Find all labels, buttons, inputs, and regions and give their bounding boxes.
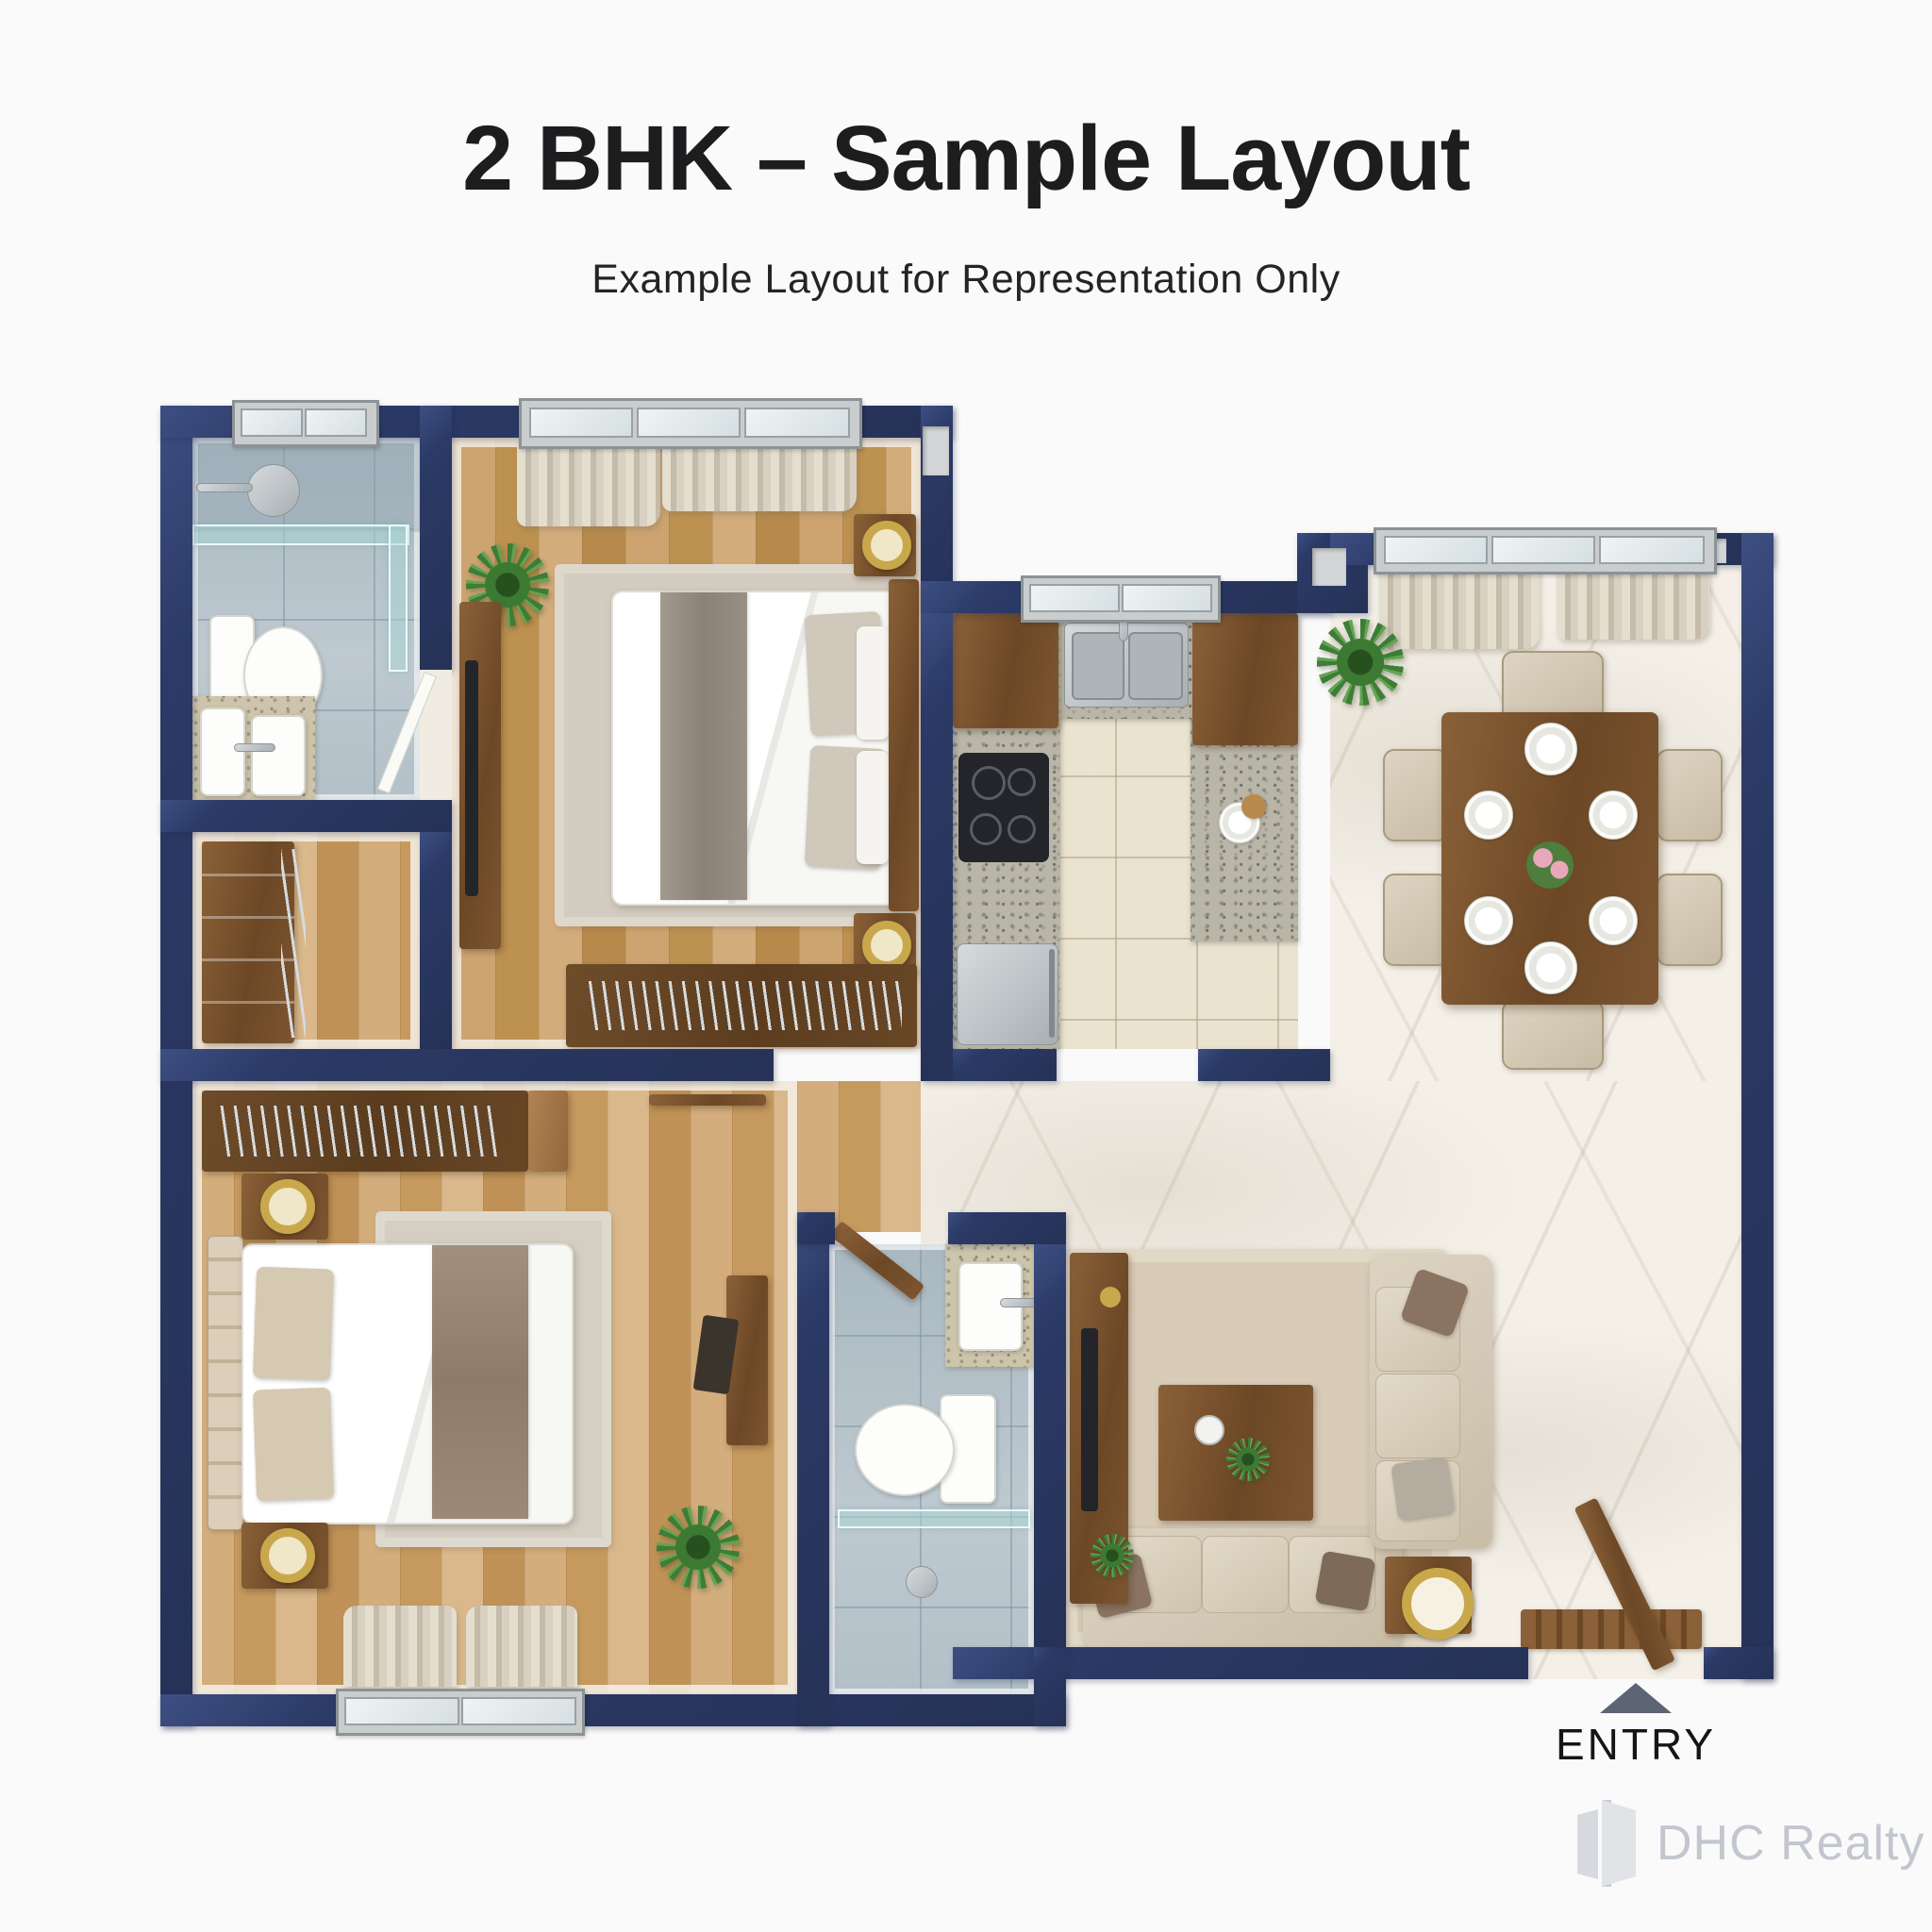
entry-doormat bbox=[1521, 1609, 1702, 1649]
bedroom-1-table-lamp bbox=[862, 521, 911, 570]
entry-label: ENTRY bbox=[1530, 1719, 1741, 1770]
bedroom-2-wardrobe-hangers bbox=[217, 1106, 500, 1157]
entry-arrow-icon bbox=[1600, 1683, 1672, 1713]
bedroom-2-wall-rail bbox=[649, 1094, 766, 1106]
dining-curtain-left bbox=[1379, 568, 1540, 649]
living-tv bbox=[1081, 1328, 1098, 1511]
bedroom-2-curtain-right bbox=[466, 1606, 577, 1687]
kitchen-cabinet-right bbox=[1192, 613, 1298, 745]
dining-plate bbox=[1464, 791, 1513, 840]
wall-shaft-niche bbox=[1312, 548, 1346, 586]
bedroom-2-curtain-left bbox=[343, 1606, 457, 1687]
cooktop-burner bbox=[1008, 815, 1036, 843]
sofa-side-cushion bbox=[1375, 1374, 1460, 1458]
page-subtitle: Example Layout for Representation Only bbox=[0, 257, 1932, 303]
bedroom-1-table-lamp bbox=[862, 921, 911, 970]
wall bbox=[1198, 1049, 1330, 1081]
kitchen-sink-bowl bbox=[1128, 632, 1183, 700]
dining-chair bbox=[1657, 749, 1723, 841]
dining-plate bbox=[1524, 941, 1577, 994]
wall bbox=[948, 1212, 1066, 1244]
dining-chair bbox=[1502, 1000, 1604, 1070]
shower-glass-partition bbox=[192, 525, 409, 545]
fridge bbox=[957, 943, 1058, 1045]
dining-centerpiece bbox=[1526, 841, 1574, 889]
kitchen-coffee-cup bbox=[1241, 794, 1266, 819]
toilet-2-bowl bbox=[855, 1404, 955, 1496]
bed-1-headboard bbox=[889, 579, 919, 911]
sofa-main-pillow bbox=[1315, 1551, 1376, 1612]
dining-plate bbox=[1589, 791, 1638, 840]
dining-curtain-right bbox=[1557, 568, 1709, 640]
wall bbox=[160, 800, 452, 832]
dining-plant bbox=[1317, 619, 1404, 706]
wall bbox=[160, 1049, 774, 1081]
table-clock bbox=[1402, 1568, 1474, 1640]
bed-1-throw-blanket bbox=[660, 592, 747, 900]
bedroom-1-curtain-right bbox=[662, 441, 857, 511]
cooktop-burner bbox=[970, 813, 1002, 845]
bedroom-2-plant bbox=[657, 1506, 740, 1589]
coffee-table-plant bbox=[1226, 1438, 1270, 1481]
dining-plate bbox=[1464, 896, 1513, 945]
page: 2 BHK – Sample Layout Example Layout for… bbox=[0, 0, 1932, 1932]
cooktop-burner bbox=[972, 766, 1006, 800]
wall bbox=[797, 1212, 835, 1244]
bathroom-2-faucet bbox=[1000, 1298, 1038, 1307]
vanity-sink-2 bbox=[251, 715, 306, 796]
wall bbox=[1704, 1647, 1774, 1679]
living-console-plant bbox=[1091, 1534, 1134, 1577]
dining-chair bbox=[1657, 874, 1723, 966]
wall bbox=[420, 406, 452, 670]
wall bbox=[797, 1212, 829, 1726]
living-console-decor bbox=[1100, 1287, 1121, 1307]
cooktop-burner bbox=[1008, 768, 1036, 796]
bedroom-1-tv bbox=[465, 660, 478, 896]
watermark-text: DHC Realty bbox=[1657, 1815, 1925, 1872]
shower-head bbox=[247, 464, 300, 517]
bedroom-2-wardrobe-end bbox=[528, 1091, 568, 1172]
wall-shaft-niche bbox=[923, 426, 949, 475]
wall bbox=[420, 832, 452, 1049]
vanity-sink-1 bbox=[200, 708, 245, 796]
page-title: 2 BHK – Sample Layout bbox=[0, 106, 1932, 211]
wall bbox=[160, 1694, 1066, 1726]
kitchen-cabinet-left bbox=[953, 613, 1058, 728]
dining-window bbox=[1374, 527, 1717, 575]
bedroom-2-table-lamp bbox=[260, 1179, 315, 1234]
bed-2-pillow bbox=[253, 1388, 334, 1502]
kitchen-window bbox=[1021, 575, 1221, 623]
wall bbox=[1034, 1647, 1066, 1726]
dining-chair bbox=[1383, 749, 1449, 841]
bathroom-2-drain bbox=[906, 1566, 938, 1598]
bed-1-pillow-white bbox=[857, 751, 889, 864]
bed-2-pillow bbox=[253, 1267, 334, 1381]
closet-hanger-rail bbox=[281, 849, 306, 1038]
shower-glass-return bbox=[389, 525, 408, 672]
hallway-floor bbox=[797, 1081, 921, 1232]
wall bbox=[953, 1049, 1057, 1081]
bedroom-1-window bbox=[519, 398, 862, 449]
wall bbox=[1741, 533, 1774, 1679]
kitchen-sink-bowl bbox=[1072, 632, 1124, 700]
dining-plate bbox=[1524, 723, 1577, 775]
bed-1-pillow-white bbox=[857, 626, 889, 740]
wall bbox=[1034, 1244, 1066, 1647]
dining-chair bbox=[1502, 651, 1604, 721]
shower-arm bbox=[196, 483, 253, 492]
bathroom-1-window bbox=[232, 400, 379, 447]
wall bbox=[921, 613, 953, 1081]
vanity-faucet bbox=[234, 743, 275, 752]
coffee-table-vase bbox=[1194, 1415, 1224, 1445]
bedroom-2-table-lamp bbox=[260, 1528, 315, 1583]
watermark-logo-icon bbox=[1577, 1800, 1643, 1887]
bedroom-2-window bbox=[336, 1689, 585, 1736]
bathroom-2-glass-shelf bbox=[838, 1509, 1030, 1528]
sofa-side-pillow bbox=[1391, 1457, 1455, 1521]
bedroom-1-curtain-left bbox=[517, 443, 660, 526]
cooktop bbox=[958, 753, 1049, 862]
watermark: DHC Realty bbox=[1577, 1800, 1925, 1887]
bed-2-throw-blanket bbox=[432, 1245, 528, 1519]
fridge-handle bbox=[1049, 949, 1055, 1038]
bed-2-headboard bbox=[208, 1236, 243, 1530]
sofa-main-cushion bbox=[1202, 1536, 1289, 1613]
dining-plate bbox=[1589, 896, 1638, 945]
bedroom-1-wardrobe-hangers bbox=[585, 981, 902, 1030]
dining-chair bbox=[1383, 874, 1449, 966]
